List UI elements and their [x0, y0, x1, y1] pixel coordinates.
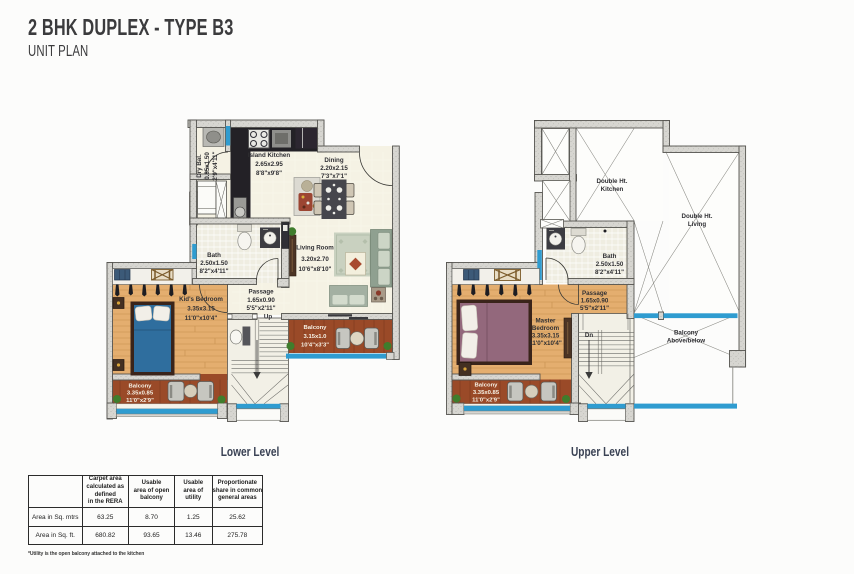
svg-text:Above/below: Above/below: [667, 338, 705, 345]
svg-text:5'5"x2'11": 5'5"x2'11": [246, 305, 275, 312]
svg-text:0.85x1.50: 0.85x1.50: [204, 152, 211, 180]
svg-text:Balcony: Balcony: [674, 330, 699, 337]
svg-text:Bath: Bath: [207, 252, 221, 259]
svg-text:Island Kitchen: Island Kitchen: [248, 152, 291, 159]
svg-text:7'3"x7'1": 7'3"x7'1": [321, 173, 347, 180]
svg-text:Balcony: Balcony: [304, 325, 328, 331]
svg-text:8'2"x4'11": 8'2"x4'11": [595, 269, 624, 276]
svg-text:8'8"x9'8": 8'8"x9'8": [256, 170, 282, 177]
svg-text:3.35x3.15: 3.35x3.15: [532, 333, 560, 340]
svg-text:10'4"x3'3": 10'4"x3'3": [301, 343, 329, 349]
svg-text:11'0"x10'4": 11'0"x10'4": [529, 340, 562, 347]
svg-text:8'2"x4'11": 8'2"x4'11": [199, 268, 228, 275]
svg-text:3.20x2.70: 3.20x2.70: [301, 256, 329, 263]
svg-text:2.20x2.15: 2.20x2.15: [320, 165, 348, 172]
svg-text:10'6"x8'10": 10'6"x8'10": [299, 266, 332, 273]
svg-text:Passage: Passage: [582, 290, 608, 297]
svg-text:Double Ht.: Double Ht.: [682, 213, 713, 220]
svg-text:Passage: Passage: [248, 289, 274, 296]
svg-text:3.15x1.0: 3.15x1.0: [304, 334, 328, 340]
svg-text:Balcony: Balcony: [129, 383, 153, 389]
svg-text:Kitchen: Kitchen: [601, 186, 624, 193]
svg-text:Up: Up: [264, 314, 272, 321]
svg-text:2.50x1.50: 2.50x1.50: [200, 260, 228, 267]
svg-text:5'5"x2'11": 5'5"x2'11": [580, 305, 609, 312]
svg-text:Kid's Bedroom: Kid's Bedroom: [179, 296, 223, 303]
svg-text:1.65x0.90: 1.65x0.90: [581, 298, 609, 305]
svg-text:Dry Bal.: Dry Bal.: [196, 154, 203, 178]
svg-text:2'9"x4'11": 2'9"x4'11": [212, 151, 219, 180]
svg-text:Double Ht.: Double Ht.: [597, 178, 628, 185]
svg-text:Living Room: Living Room: [296, 245, 334, 252]
svg-text:Dining: Dining: [324, 157, 343, 164]
svg-text:3.35x0.85: 3.35x0.85: [473, 390, 500, 396]
svg-text:Bedroom: Bedroom: [532, 325, 560, 332]
svg-text:Master: Master: [536, 318, 557, 325]
svg-text:11'0"x10'4": 11'0"x10'4": [185, 315, 218, 322]
svg-text:11'0"x2'9": 11'0"x2'9": [472, 397, 500, 403]
svg-text:Dn: Dn: [585, 332, 593, 339]
svg-text:3.35x0.85: 3.35x0.85: [127, 391, 154, 397]
svg-text:2.65x2.95: 2.65x2.95: [255, 161, 283, 168]
svg-text:Living: Living: [688, 221, 706, 228]
svg-text:2.50x1.50: 2.50x1.50: [596, 261, 624, 268]
svg-text:1.65x0.90: 1.65x0.90: [247, 297, 275, 304]
svg-text:Balcony: Balcony: [475, 383, 499, 389]
svg-text:3.35x3.15: 3.35x3.15: [187, 306, 215, 313]
svg-text:11'0"x2'9": 11'0"x2'9": [126, 398, 154, 404]
svg-text:Bath: Bath: [603, 253, 617, 260]
